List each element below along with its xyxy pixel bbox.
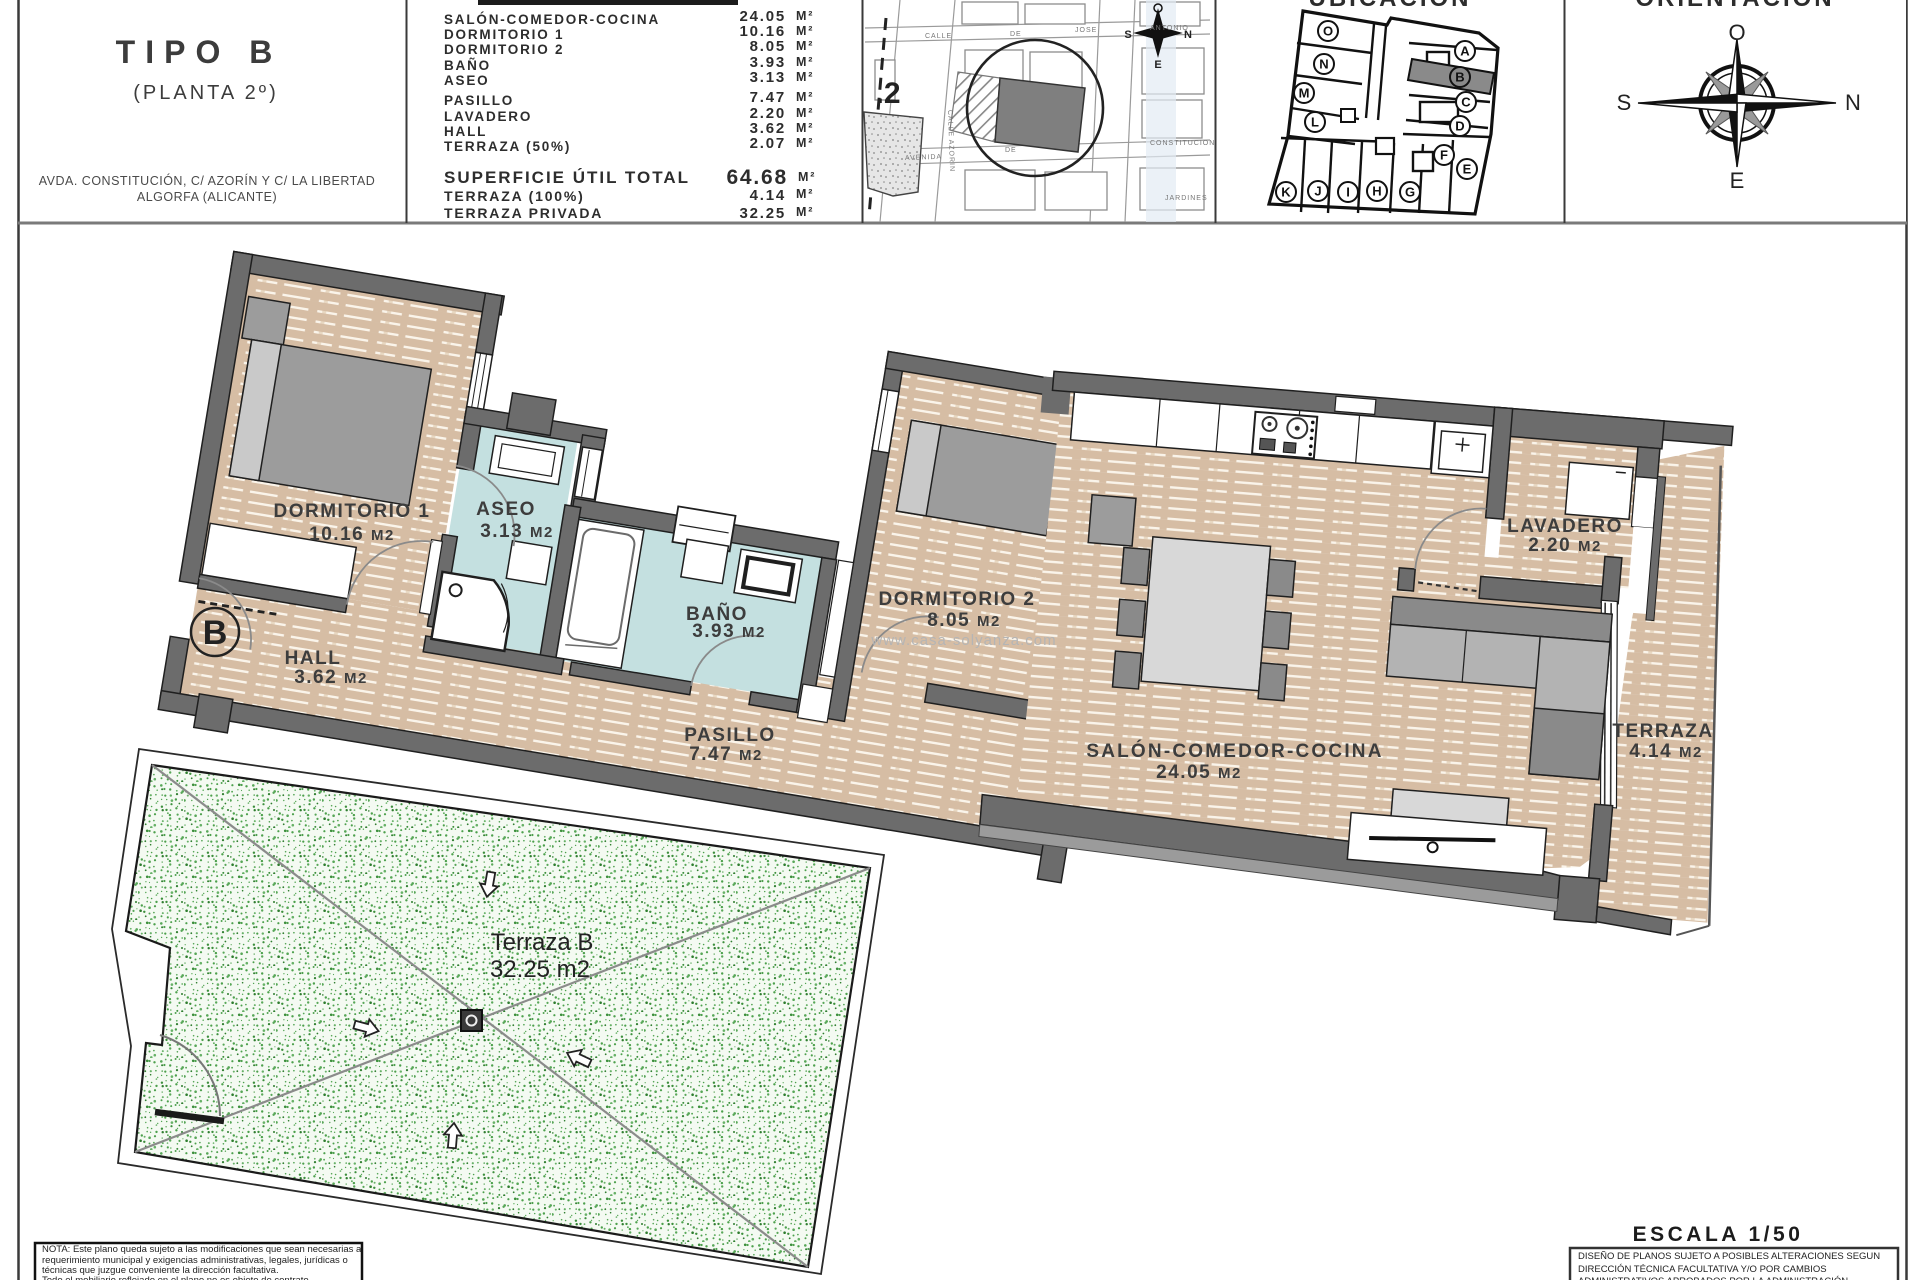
svg-text:3.13 M2: 3.13 M2: [480, 521, 554, 542]
svg-text:ORIENTACIÓN: ORIENTACIÓN: [1635, 0, 1834, 12]
svg-text:M²: M²: [796, 70, 814, 84]
svg-text:D: D: [1455, 119, 1464, 134]
svg-text:CONSTITUCION: CONSTITUCION: [1150, 140, 1215, 147]
svg-text:N: N: [1319, 57, 1328, 72]
svg-text:.2: .2: [875, 77, 900, 110]
svg-text:M²: M²: [796, 136, 814, 150]
svg-text:DIRECCIÓN TÉCNICA FACULTATIVA: DIRECCIÓN TÉCNICA FACULTATIVA Y/O POR CA…: [1578, 1264, 1827, 1275]
svg-text:SUPERFICIE ÚTIL TOTAL: SUPERFICIE ÚTIL TOTAL: [444, 168, 690, 187]
svg-text:4.14: 4.14: [750, 187, 786, 204]
svg-text:L: L: [1311, 115, 1319, 130]
svg-text:E: E: [1730, 168, 1745, 193]
svg-text:S: S: [1617, 90, 1632, 115]
svg-text:ADMINISTRATIVOS APROBADOS POR: ADMINISTRATIVOS APROBADOS POR LA ADMINIS…: [1578, 1276, 1848, 1280]
svg-text:DORMITORIO 2: DORMITORIO 2: [444, 42, 564, 57]
svg-text:M²: M²: [796, 106, 814, 120]
svg-text:8.05: 8.05: [750, 38, 786, 55]
svg-text:ASEO: ASEO: [444, 73, 489, 88]
svg-text:B: B: [1455, 70, 1464, 85]
svg-text:www.casa-solyanza.com: www.casa-solyanza.com: [870, 632, 1056, 649]
svg-text:A: A: [1460, 44, 1470, 59]
svg-text:2.07: 2.07: [750, 135, 786, 152]
svg-text:NOTA: Este plano queda sujeto: NOTA: Este plano queda sujeto a las modi…: [42, 1244, 362, 1255]
svg-text:E: E: [1154, 59, 1161, 71]
svg-text:8.05 M2: 8.05 M2: [927, 610, 1001, 631]
svg-text:E: E: [1463, 162, 1472, 177]
svg-text:3.13: 3.13: [750, 69, 786, 86]
svg-text:O: O: [1728, 20, 1745, 45]
svg-text:HALL: HALL: [285, 648, 342, 669]
svg-text:4.14 M2: 4.14 M2: [1629, 741, 1703, 762]
svg-text:TIPO B: TIPO B: [116, 34, 283, 70]
svg-text:O: O: [1323, 24, 1333, 39]
svg-text:DE: DE: [1010, 31, 1022, 38]
svg-text:DORMITORIO 1: DORMITORIO 1: [444, 27, 564, 42]
svg-text:I: I: [1346, 185, 1350, 200]
svg-text:32.25: 32.25: [739, 205, 786, 222]
svg-text:10.16 M2: 10.16 M2: [309, 524, 395, 545]
svg-text:SALÓN-COMEDOR-COCINA: SALÓN-COMEDOR-COCINA: [444, 12, 660, 27]
svg-text:M²: M²: [796, 9, 814, 23]
svg-text:M²: M²: [796, 205, 814, 219]
svg-text:UBICACIÓN: UBICACIÓN: [1309, 0, 1472, 12]
svg-text:AVDA. CONSTITUCIÓN, C/ AZORÍN: AVDA. CONSTITUCIÓN, C/ AZORÍN Y C/ LA LI…: [39, 173, 376, 188]
svg-text:BAÑO: BAÑO: [444, 58, 491, 73]
svg-text:3.93 M2: 3.93 M2: [692, 621, 766, 642]
svg-text:LAVADERO: LAVADERO: [1507, 516, 1623, 537]
svg-text:M²: M²: [796, 187, 814, 201]
svg-text:7.47 M2: 7.47 M2: [689, 744, 763, 765]
svg-text:24.05 M2: 24.05 M2: [1156, 762, 1242, 783]
svg-text:JOSE: JOSE: [1075, 27, 1097, 34]
svg-text:M²: M²: [798, 170, 816, 184]
svg-text:H: H: [1372, 184, 1381, 199]
svg-text:3.62 M2: 3.62 M2: [294, 667, 368, 688]
svg-text:CALLE: CALLE: [925, 33, 952, 40]
svg-text:M: M: [1299, 86, 1310, 101]
svg-text:HALL: HALL: [444, 124, 487, 139]
svg-text:ALGORFA (ALICANTE): ALGORFA (ALICANTE): [137, 190, 277, 204]
svg-text:32.25 m2: 32.25 m2: [490, 956, 590, 983]
svg-text:DE: DE: [1005, 147, 1017, 154]
svg-text:AVENIDA: AVENIDA: [905, 154, 942, 162]
svg-text:TERRAZA (100%): TERRAZA (100%): [444, 188, 585, 204]
svg-text:TERRAZA (50%): TERRAZA (50%): [444, 139, 571, 154]
svg-text:K: K: [1281, 185, 1291, 200]
svg-text:M²: M²: [796, 121, 814, 135]
svg-text:ANTONIO: ANTONIO: [1150, 25, 1189, 32]
svg-text:ESCALA 1/50: ESCALA 1/50: [1633, 1223, 1804, 1246]
svg-text:(PLANTA 2º): (PLANTA 2º): [133, 82, 279, 104]
svg-text:F: F: [1440, 148, 1448, 163]
svg-text:PASILLO: PASILLO: [684, 725, 775, 746]
svg-text:Todo el mobiliario reflejado e: Todo el mobiliario reflejado en el plano…: [42, 1275, 309, 1280]
svg-text:2.20 M2: 2.20 M2: [1528, 535, 1602, 556]
svg-text:DORMITORIO 2: DORMITORIO 2: [879, 589, 1036, 610]
svg-text:N: N: [1845, 90, 1861, 115]
svg-text:S: S: [1124, 29, 1131, 41]
svg-text:ASEO: ASEO: [476, 499, 536, 520]
svg-text:G: G: [1405, 185, 1415, 200]
svg-text:DORMITORIO 1: DORMITORIO 1: [274, 501, 431, 522]
svg-text:LAVADERO: LAVADERO: [444, 109, 532, 124]
svg-text:M²: M²: [796, 55, 814, 69]
svg-text:M²: M²: [796, 90, 814, 104]
svg-text:TERRAZA PRIVADA: TERRAZA PRIVADA: [444, 205, 603, 221]
svg-text:M²: M²: [796, 39, 814, 53]
svg-text:M²: M²: [796, 24, 814, 38]
svg-text:C: C: [1461, 95, 1471, 110]
svg-text:SALÓN-COMEDOR-COCINA: SALÓN-COMEDOR-COCINA: [1086, 740, 1383, 762]
svg-text:JARDINES: JARDINES: [1165, 195, 1208, 202]
svg-text:PASILLO: PASILLO: [444, 93, 514, 108]
svg-text:DISEÑO DE PLANOS SUJETO A POSI: DISEÑO DE PLANOS SUJETO A POSIBLES ALTER…: [1578, 1251, 1880, 1262]
svg-text:Terraza B: Terraza B: [491, 929, 594, 956]
svg-text:TERRAZA: TERRAZA: [1612, 721, 1713, 742]
svg-text:64.68: 64.68: [726, 166, 788, 189]
svg-text:B: B: [203, 614, 228, 652]
svg-text:J: J: [1314, 184, 1321, 199]
svg-text:7.47: 7.47: [750, 89, 786, 106]
